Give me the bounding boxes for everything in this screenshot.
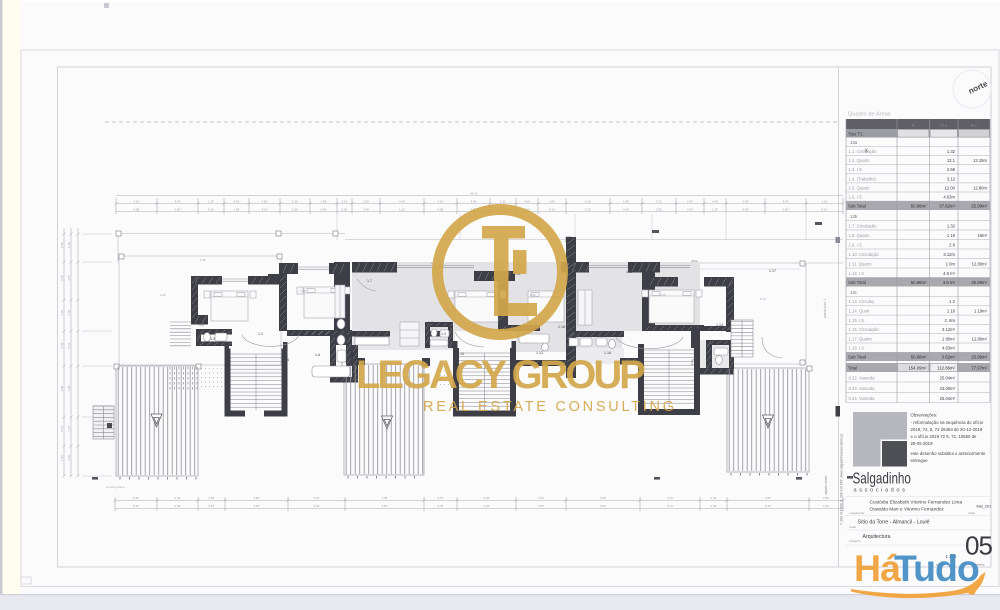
svg-text:5.10: 5.10	[67, 342, 71, 348]
svg-text:4.63m²: 4.63m²	[942, 346, 956, 351]
svg-text:12.00: 12.00	[945, 185, 956, 190]
svg-text:3.15: 3.15	[549, 208, 555, 212]
svg-text:5.10: 5.10	[60, 425, 64, 431]
svg-text:1.20: 1.20	[822, 200, 828, 204]
svg-text:44.10: 44.10	[470, 192, 478, 196]
svg-text:3.12m: 3.12m	[943, 252, 955, 257]
svg-text:Sub Total: Sub Total	[848, 354, 866, 359]
svg-text:LEGACY GROUP: LEGACY GROUP	[356, 353, 652, 397]
svg-text:1.4. (Trabalho): 1.4. (Trabalho)	[849, 176, 877, 181]
svg-text:este desenho substitui o anter: este desenho substitui o anteriormente	[911, 451, 986, 456]
svg-text:1.13. Circulaç.: 1.13. Circulaç.	[849, 299, 876, 304]
svg-text:2.80: 2.80	[67, 309, 71, 315]
svg-text:e o ofício 2019 72 5, 72, 10: e o ofício 2019 72 5, 72, 10550 de	[911, 434, 978, 439]
svg-text:1.6. I.S.: 1.6. I.S.	[849, 195, 863, 200]
svg-text:3 6 m²: 3 6 m²	[943, 280, 956, 285]
svg-text:25.04m²: 25.04m²	[940, 396, 956, 401]
svg-text:1.20: 1.20	[208, 200, 214, 204]
svg-text:13.1: 13.1	[947, 158, 956, 163]
svg-text:2.50: 2.50	[134, 200, 140, 204]
svg-text:12.80m: 12.80m	[973, 185, 987, 190]
svg-text:12.80m²: 12.80m²	[972, 261, 988, 266]
svg-text:Salgadinho: Salgadinho	[853, 469, 912, 487]
svg-text:3.12: 3.12	[947, 176, 956, 181]
svg-text:2.80: 2.80	[600, 504, 606, 508]
svg-text:1.95: 1.95	[382, 496, 388, 500]
svg-text:Mai_201: Mai_201	[977, 505, 992, 509]
svg-text:3.15: 3.15	[765, 504, 771, 508]
svg-text:1.16. Circulação: 1.16. Circulação	[849, 327, 880, 332]
svg-text:1.1. Circulação: 1.1. Circulação	[849, 149, 878, 154]
svg-text:4.65: 4.65	[134, 208, 140, 212]
svg-text:2.80: 2.80	[783, 208, 789, 212]
svg-text:5.10: 5.10	[667, 504, 673, 508]
svg-text:1.1: 1.1	[258, 332, 263, 336]
svg-text:Sub Total: Sub Total	[848, 280, 866, 285]
svg-text:5.10: 5.10	[208, 208, 214, 212]
svg-text:2.58: 2.58	[947, 167, 956, 172]
svg-text:1.20: 1.20	[711, 496, 717, 500]
svg-text:12.80m²: 12.80m²	[972, 336, 988, 341]
svg-text:0.23. Varanda: 0.23. Varanda	[849, 386, 876, 391]
svg-text:13c: 13c	[850, 290, 858, 295]
svg-text:entregue: entregue	[911, 458, 929, 463]
svg-text:25.04m²: 25.04m²	[940, 375, 956, 380]
svg-text:154.09m²: 154.09m²	[908, 365, 927, 370]
svg-text:data: data	[969, 511, 975, 515]
svg-text:1.32: 1.32	[947, 149, 956, 154]
svg-text:4.40: 4.40	[538, 496, 544, 500]
svg-text:2.50: 2.50	[743, 200, 749, 204]
svg-text:1.2: 1.2	[199, 323, 204, 327]
svg-text:2.50: 2.50	[382, 504, 388, 508]
svg-text:3.15: 3.15	[67, 425, 71, 431]
svg-text:4.20: 4.20	[160, 293, 166, 297]
svg-text:2.20: 2.20	[363, 200, 369, 204]
svg-text:1.10. Circulação: 1.10. Circulação	[849, 252, 880, 257]
svg-text:1.17. Quarto: 1.17. Quarto	[849, 336, 873, 341]
svg-text:Tipo T1: Tipo T1	[848, 131, 863, 136]
svg-text:1.15. I.S.: 1.15. I.S.	[849, 318, 866, 323]
svg-text:4.65: 4.65	[67, 275, 71, 281]
svg-text:2.50: 2.50	[600, 496, 606, 500]
svg-text:25.99m²: 25.99m²	[971, 203, 987, 208]
svg-text:1.18. I.S.: 1.18. I.S.	[849, 346, 866, 351]
svg-text:3.15: 3.15	[209, 504, 215, 508]
svg-text:Sub Total: Sub Total	[848, 203, 866, 208]
svg-text:1 19: 1 19	[947, 309, 956, 314]
svg-text:1.8: 1.8	[428, 321, 433, 325]
svg-text:5.10: 5.10	[133, 504, 139, 508]
svg-text:2.80: 2.80	[262, 200, 268, 204]
svg-text:3.10: 3.10	[300, 289, 306, 293]
svg-text:A.u.: A.u.	[941, 123, 948, 128]
svg-text:4.40: 4.40	[399, 200, 405, 204]
svg-text:2.20: 2.20	[585, 208, 591, 212]
svg-text:23.00m²: 23.00m²	[940, 386, 956, 391]
svg-text:2.80: 2.80	[823, 496, 829, 500]
svg-text:1.17: 1.17	[626, 270, 633, 274]
svg-text:1.20: 1.20	[67, 242, 71, 248]
svg-text:projecto: projecto	[850, 539, 861, 543]
svg-text:1.32: 1.32	[947, 223, 956, 228]
svg-text:1.95: 1.95	[623, 200, 629, 204]
svg-text:REAL ESTATE CONSULTING: REAL ESTATE CONSULTING	[423, 399, 678, 415]
svg-text:4.65: 4.65	[60, 342, 64, 348]
svg-text:25.99m²: 25.99m²	[971, 354, 987, 359]
svg-text:3.25: 3.25	[660, 293, 666, 297]
svg-text:1.9. I.S.: 1.9. I.S.	[849, 242, 863, 247]
svg-text:1.3. I.S.: 1.3. I.S.	[849, 167, 863, 172]
svg-text:2 8: 2 8	[949, 242, 955, 247]
svg-text:77.97m²: 77.97m²	[971, 365, 987, 370]
svg-text:2.20: 2.20	[823, 504, 829, 508]
svg-text:1.20: 1.20	[712, 208, 718, 212]
svg-text:0.24. Varanda: 0.24. Varanda	[849, 396, 876, 401]
svg-text:2.20: 2.20	[687, 200, 693, 204]
svg-text:13a: 13a	[850, 140, 858, 145]
svg-text:Tudo: Tudo	[894, 547, 979, 589]
svg-text:4.40: 4.40	[314, 504, 320, 508]
svg-text:3.40: 3.40	[363, 208, 369, 212]
svg-text:Arquitectura: Arquitectura	[863, 534, 891, 540]
svg-text:1.3: 1.3	[210, 337, 215, 341]
svg-text:Oswaldo Man e Vitorino Fernan: Oswaldo Man e Vitorino Fernandez	[870, 507, 945, 513]
svg-text:2.20: 2.20	[292, 208, 298, 212]
svg-text:50.98m²: 50.98m²	[911, 203, 927, 208]
svg-text:4.65: 4.65	[438, 208, 444, 212]
svg-text:1.7. Circulação: 1.7. Circulação	[849, 223, 878, 228]
svg-text:1.95: 1.95	[234, 208, 240, 212]
svg-text:13.19m: 13.19m	[973, 158, 987, 163]
svg-text:1.11. Quarto: 1.11. Quarto	[849, 261, 873, 266]
svg-text:50.98m²: 50.98m²	[911, 280, 927, 285]
svg-text:4.40: 4.40	[623, 208, 629, 212]
svg-text:A.: A.	[912, 123, 916, 128]
svg-text:1.9: 1.9	[441, 332, 446, 336]
svg-text:2.80: 2.80	[254, 496, 260, 500]
svg-text:1.4: 1.4	[284, 358, 289, 362]
svg-text:3.40: 3.40	[667, 496, 673, 500]
svg-text:5.10: 5.10	[585, 200, 591, 204]
svg-text:3.40: 3.40	[471, 200, 477, 204]
svg-text:4.65: 4.65	[538, 504, 544, 508]
svg-text:13b: 13b	[850, 214, 858, 219]
svg-text:1.8. Quarto: 1.8. Quarto	[849, 233, 871, 238]
svg-text:1 19m²: 1 19m²	[974, 309, 988, 314]
svg-text:4.63m: 4.63m	[943, 195, 955, 200]
svg-text:50.98m²: 50.98m²	[911, 354, 927, 359]
svg-text:- reformulação na sequência do: - reformulação na sequência do ofício	[911, 420, 984, 425]
svg-text:3.40: 3.40	[175, 200, 181, 204]
svg-text:1.80: 1.80	[200, 258, 206, 262]
svg-text:2.20: 2.20	[254, 504, 260, 508]
svg-text:3 62m²: 3 62m²	[942, 354, 956, 359]
svg-text:5.10: 5.10	[822, 208, 828, 212]
svg-text:1.5.: 1.5.	[288, 270, 294, 274]
svg-text:1.20: 1.20	[60, 309, 64, 315]
svg-text:1.2. Quarto: 1.2. Quarto	[849, 158, 871, 163]
svg-text:1.17: 1.17	[769, 269, 776, 273]
svg-text:associados: associados	[854, 488, 908, 494]
svg-text:3.15: 3.15	[438, 496, 444, 500]
svg-text:4.65: 4.65	[209, 496, 215, 500]
svg-text:3.40: 3.40	[783, 200, 789, 204]
svg-text:0.22. Varanda: 0.22. Varanda	[849, 375, 876, 380]
svg-text:1.20: 1.20	[500, 200, 506, 204]
svg-text:Total: Total	[848, 365, 857, 370]
svg-text:2.80: 2.80	[175, 208, 181, 212]
svg-text:1.95: 1.95	[60, 455, 64, 461]
svg-text:1 80m²: 1 80m²	[942, 336, 956, 341]
svg-text:112.86m²: 112.86m²	[937, 365, 955, 370]
svg-text:planta piso 1: planta piso 1	[823, 299, 827, 318]
svg-text:Observações:: Observações:	[911, 413, 938, 418]
svg-text:1.20: 1.20	[484, 504, 490, 508]
svg-text:1.95: 1.95	[67, 385, 71, 391]
svg-text:2.50: 2.50	[60, 242, 64, 248]
svg-text:2.80: 2.80	[60, 385, 64, 391]
svg-text:1.95: 1.95	[175, 504, 181, 508]
svg-text:2.80: 2.80	[530, 293, 536, 297]
svg-text:Quadro de Áreas: Quadro de Áreas	[848, 111, 891, 118]
svg-text:1.15: 1.15	[691, 335, 698, 339]
svg-text:3.12m²: 3.12m²	[942, 327, 956, 332]
svg-text:1.18: 1.18	[558, 325, 565, 329]
svg-text:Custódia Elizabeth Vitorino Fe: Custódia Elizabeth Vitorino Fernandez Li…	[870, 500, 963, 506]
svg-text:4.65: 4.65	[743, 208, 749, 212]
svg-text:37.62m²: 37.62m²	[939, 203, 955, 208]
svg-text:2.50: 2.50	[656, 208, 662, 212]
svg-text:2.50: 2.50	[342, 208, 348, 212]
svg-text:2.20: 2.20	[484, 496, 490, 500]
svg-text:25.99m²: 25.99m²	[971, 280, 987, 285]
svg-text:4.65: 4.65	[234, 200, 240, 204]
svg-text:local: local	[850, 525, 857, 529]
svg-text:1.95: 1.95	[321, 200, 327, 204]
svg-text:3.15: 3.15	[262, 208, 268, 212]
svg-text:4.40: 4.40	[321, 208, 327, 212]
svg-text:1 19: 1 19	[947, 233, 956, 238]
svg-text:4.65: 4.65	[524, 200, 530, 204]
svg-text:1.7: 1.7	[367, 279, 372, 283]
svg-text:1.14. Quart: 1.14. Quart	[849, 309, 871, 314]
svg-text:19m²: 19m²	[977, 233, 987, 238]
svg-text:1 2: 1 2	[949, 299, 955, 304]
svg-text:28-05 2019: 28-05 2019	[911, 441, 934, 446]
svg-text:3.40: 3.40	[60, 275, 64, 281]
svg-text:3.40: 3.40	[133, 496, 139, 500]
svg-text:1.95: 1.95	[711, 504, 717, 508]
svg-text:4.65: 4.65	[765, 496, 771, 500]
svg-text:2.20: 2.20	[67, 455, 71, 461]
svg-text:1.12. I.S.: 1.12. I.S.	[849, 271, 866, 276]
svg-text:Sítio da Torre - Almancil - Lo: Sítio da Torre - Almancil - Loulé	[858, 520, 930, 526]
svg-text:1.14: 1.14	[716, 323, 723, 327]
svg-text:2018, 72, 5, 72 26453 de 20-1: 2018, 72, 5, 72 26453 de 20-12-2018	[911, 427, 983, 432]
svg-text:escala gráfica: escala gráfica	[106, 485, 125, 489]
svg-text:2.80: 2.80	[549, 200, 555, 204]
svg-text:2. 8m: 2. 8m	[945, 318, 956, 323]
svg-text:3.15: 3.15	[342, 200, 348, 204]
svg-text:1.20: 1.20	[399, 208, 405, 212]
svg-text:requerente: requerente	[850, 511, 865, 515]
svg-text:1.20: 1.20	[175, 496, 181, 500]
svg-text:4.40: 4.40	[712, 200, 718, 204]
svg-text:alçado oeste: alçado oeste	[824, 476, 828, 495]
svg-text:T. 289 416 668 F. 289 416 669: T. 289 416 668 F. 289 416 669 www.salgad…	[840, 434, 844, 525]
svg-text:1 0m: 1 0m	[946, 261, 956, 266]
svg-text:3.40: 3.40	[438, 504, 444, 508]
svg-text:5.10: 5.10	[314, 496, 320, 500]
svg-text:2.50: 2.50	[438, 200, 444, 204]
svg-text:5.10: 5.10	[760, 297, 766, 301]
svg-text:A.v.: A.v.	[971, 123, 978, 128]
svg-text:4.6 m²: 4.6 m²	[943, 271, 955, 276]
svg-text:3.40: 3.40	[687, 208, 693, 212]
svg-text:5.10: 5.10	[292, 200, 298, 204]
svg-text:1.6: 1.6	[315, 353, 320, 357]
svg-text:1.5. Quarto: 1.5. Quarto	[849, 185, 871, 190]
svg-text:3.15: 3.15	[656, 200, 662, 204]
